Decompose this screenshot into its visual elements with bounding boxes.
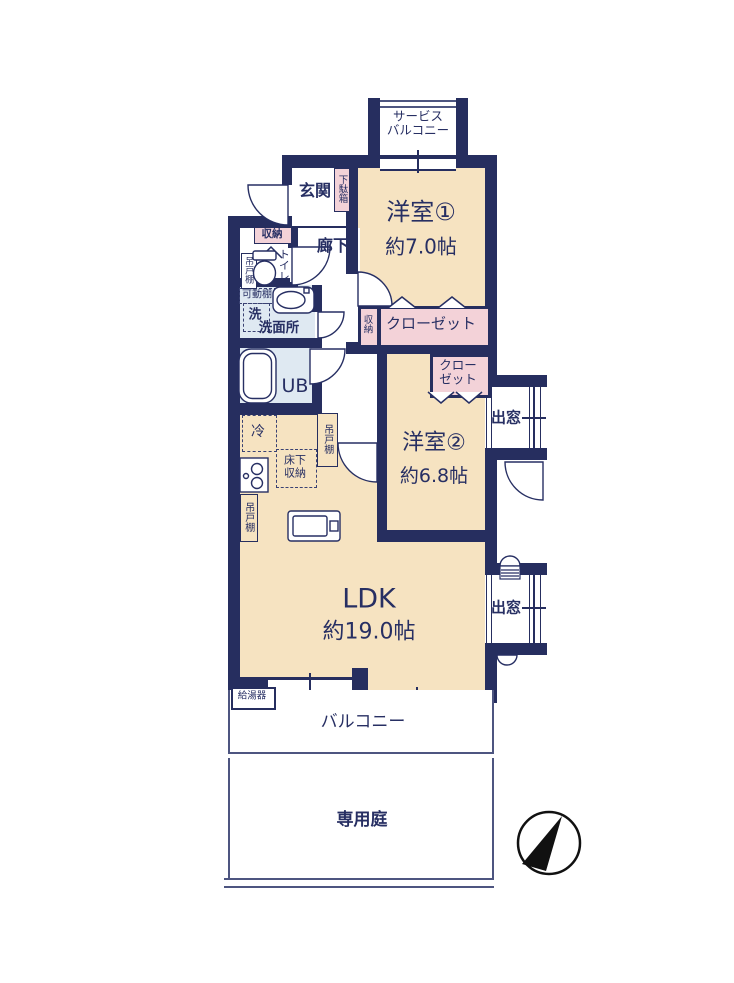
wall-sb-left xyxy=(368,98,380,158)
shoe-cabinet-label: 下駄箱 xyxy=(336,175,347,204)
ldk-floor xyxy=(368,542,485,690)
wall-room2-left xyxy=(377,342,387,542)
ldk-size: 約19.0帖 xyxy=(323,619,416,644)
wall-washroom-right xyxy=(312,285,322,312)
toilet-label: トイレ xyxy=(277,249,290,282)
refrigerator-label: 冷 xyxy=(251,424,265,440)
washroom-label: 洗面所 xyxy=(259,321,300,337)
closet2-line1: クロー xyxy=(439,359,477,373)
floor-plan: サービス バルコニー 玄関 下駄箱 収納 トイレ 吊戸棚 可動棚 洗 洗面所 廊… xyxy=(0,0,734,983)
entrance-label: 玄関 xyxy=(299,182,331,200)
hanging-cabinet-toilet-label: 吊戸棚 xyxy=(243,257,253,284)
service-balcony-label: サービス バルコニー xyxy=(387,110,449,139)
private-garden-label: 専用庭 xyxy=(337,811,388,831)
corridor-storage-label: 収納 xyxy=(361,315,372,334)
closet2-line2: ゼット xyxy=(439,373,477,387)
wall-sb-right xyxy=(456,98,468,158)
bay2-tick xyxy=(522,607,546,609)
wall-right-upper xyxy=(485,155,497,387)
underfloor-line2: 収納 xyxy=(284,467,306,480)
wall-entrance-left xyxy=(282,155,292,185)
room2-name: 洋室② xyxy=(402,430,466,455)
bay-window1-label: 出窓 xyxy=(491,409,521,426)
wall-right-mid xyxy=(485,448,497,575)
room2-size: 約6.8帖 xyxy=(400,466,468,488)
unit-bath-label: UB xyxy=(282,376,309,398)
room1-size: 約7.0帖 xyxy=(385,236,457,259)
bay2-glass xyxy=(529,575,541,643)
wall-room2-bottom xyxy=(377,530,497,542)
underfloor-line1: 床下 xyxy=(284,454,306,467)
water-heater-label: 給湯器 xyxy=(238,692,267,703)
service-balcony-line2: バルコニー xyxy=(387,124,449,138)
hanging-cabinet-lower-label: 吊戸棚 xyxy=(242,502,254,532)
entrance-step-line xyxy=(292,226,348,228)
louver-arc-bottom xyxy=(497,655,517,665)
garden-bottom-rail xyxy=(224,878,494,888)
underfloor-storage-label: 床下 収納 xyxy=(284,454,306,479)
wall-bay1-cap-top xyxy=(497,375,547,387)
window-top-tick xyxy=(417,150,419,173)
service-balcony-rail xyxy=(380,100,456,108)
ldk-name: LDK xyxy=(342,583,396,614)
balcony-label: バルコニー xyxy=(321,713,406,733)
bay-window2-label: 出窓 xyxy=(491,599,521,616)
compass-north-arrow xyxy=(518,812,580,874)
closet2-label: クロー ゼット xyxy=(439,359,477,388)
wall-bay2-cap-top xyxy=(497,563,547,575)
room1-name: 洋室① xyxy=(386,199,456,227)
service-balcony-line1: サービス xyxy=(393,110,443,124)
hanging-cabinet-kitchen-label: 吊戸棚 xyxy=(321,424,333,454)
wall-ub-bottom xyxy=(228,403,318,415)
movable-shelf-label: 可動棚 xyxy=(242,289,272,301)
wall-bay2-cap-bottom xyxy=(497,643,547,655)
closet1-label: クローゼット xyxy=(386,315,476,332)
wall-bay1-cap-bottom xyxy=(497,448,547,460)
exterior-alcove xyxy=(497,460,541,563)
bay2-glass-mid xyxy=(533,575,535,643)
entrance-storage-label: 収納 xyxy=(262,228,283,240)
corridor-label: 廊下 xyxy=(317,237,349,255)
bay1-tick xyxy=(522,417,546,419)
wall-washroom-ub xyxy=(240,338,322,348)
